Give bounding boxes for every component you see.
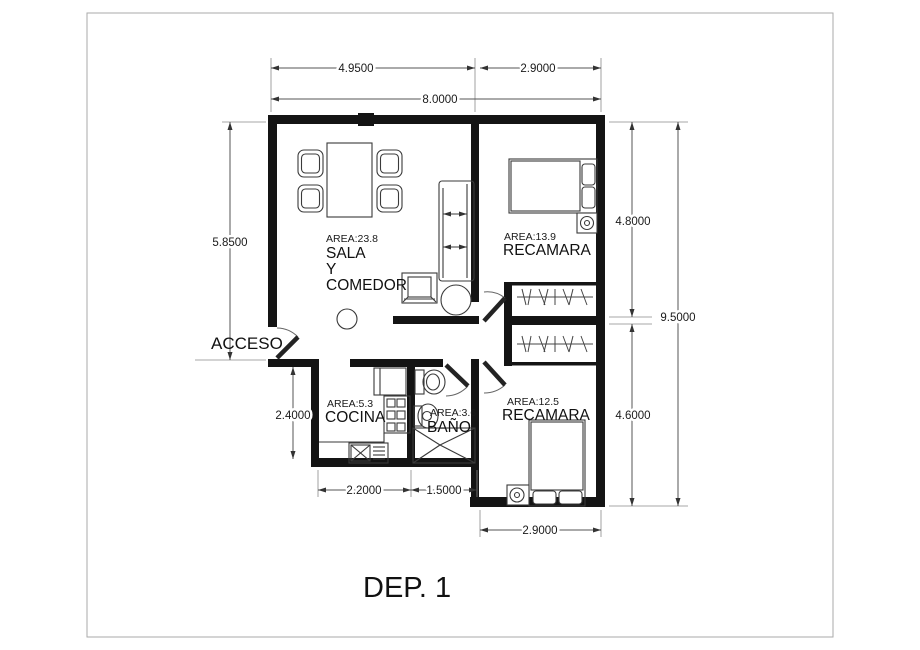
dining-chair xyxy=(298,185,323,212)
dining-chair xyxy=(377,185,402,212)
side-table xyxy=(441,285,471,315)
plant xyxy=(337,309,357,329)
armchair xyxy=(402,273,437,303)
dim-text-right-total: 9.5000 xyxy=(660,312,695,324)
wall-closet-lower-bottom xyxy=(504,362,605,366)
nightstand xyxy=(577,213,597,233)
wall-cocina-left xyxy=(311,359,319,466)
sala-name-line1: SALA xyxy=(326,245,366,262)
dim-text-bottom-recamara: 2.9000 xyxy=(522,525,557,537)
wall-closet-upper-top xyxy=(504,282,605,286)
wall-top xyxy=(268,115,605,124)
dining-table xyxy=(327,143,372,217)
bano-door-leaf xyxy=(446,365,468,386)
furniture-sala xyxy=(298,143,474,329)
bano-door-arc xyxy=(446,386,468,396)
wall-left xyxy=(268,115,277,327)
wall-top-column xyxy=(358,113,374,126)
page-border xyxy=(87,13,833,637)
dim-text-top-sala: 4.9500 xyxy=(338,63,373,75)
pillow xyxy=(582,187,595,208)
wall-sala-recamara-divider xyxy=(471,115,479,302)
dim-text-left-upper: 5.8500 xyxy=(212,237,247,249)
closet-rod-upper xyxy=(517,289,593,305)
wall-closet-middle xyxy=(504,316,605,325)
recamara-top-name: RECAMARA xyxy=(503,242,592,259)
hall-lower-door-leaf xyxy=(484,362,505,385)
furniture-recamara-bottom xyxy=(507,420,585,506)
sofa xyxy=(439,181,474,281)
closet-rod-lower xyxy=(517,336,593,352)
dim-text-bottom-bano: 1.5000 xyxy=(426,485,461,497)
bano-name: BAÑO xyxy=(427,419,471,436)
hall-lower-door-arc xyxy=(484,385,505,393)
plan-title: DEP. 1 xyxy=(363,572,451,604)
dim-text-top-recamara: 2.9000 xyxy=(520,63,555,75)
cocina-name: COCINA xyxy=(325,409,386,426)
sala-name-line2: Y xyxy=(326,261,336,278)
dining-chair xyxy=(377,150,402,177)
pillow xyxy=(582,164,595,185)
access-label: ACCESO xyxy=(211,334,283,353)
furniture-recamara-top xyxy=(509,159,597,233)
pillow xyxy=(533,491,556,504)
wall-acceso-step xyxy=(268,359,318,367)
stove xyxy=(384,396,410,433)
floor-plan-canvas: 4.9500 2.9000 8.0000 5.8500 2.4000 4.800… xyxy=(0,0,920,650)
bed-mattress xyxy=(531,422,583,490)
dim-text-right-upper: 4.8000 xyxy=(615,216,650,228)
nightstand xyxy=(507,485,529,505)
dim-text-bottom-cocina: 2.2000 xyxy=(346,485,381,497)
bed-mattress xyxy=(511,161,580,211)
wall-cocina-bano-top xyxy=(350,359,443,367)
wall-sala-bottom xyxy=(393,316,479,324)
wall-closet-lower-left xyxy=(504,316,512,366)
dining-chair xyxy=(298,150,323,177)
sala-name-line3: COMEDOR xyxy=(326,277,407,294)
bano-area-label: AREA:3.6 xyxy=(430,407,476,419)
refrigerator xyxy=(374,368,406,395)
dim-text-left-lower: 2.4000 xyxy=(275,410,310,422)
hall-upper-door-arc xyxy=(484,292,505,298)
dim-text-right-lower: 4.6000 xyxy=(615,410,650,422)
pillow xyxy=(559,491,582,504)
sala-area-label: AREA:23.8 xyxy=(326,233,378,245)
toilet xyxy=(415,370,445,394)
dim-text-top-total: 8.0000 xyxy=(422,94,457,106)
counter-edge xyxy=(319,433,384,442)
hall-upper-door-leaf xyxy=(484,298,505,321)
recamara-bottom-name: RECAMARA xyxy=(502,407,591,424)
